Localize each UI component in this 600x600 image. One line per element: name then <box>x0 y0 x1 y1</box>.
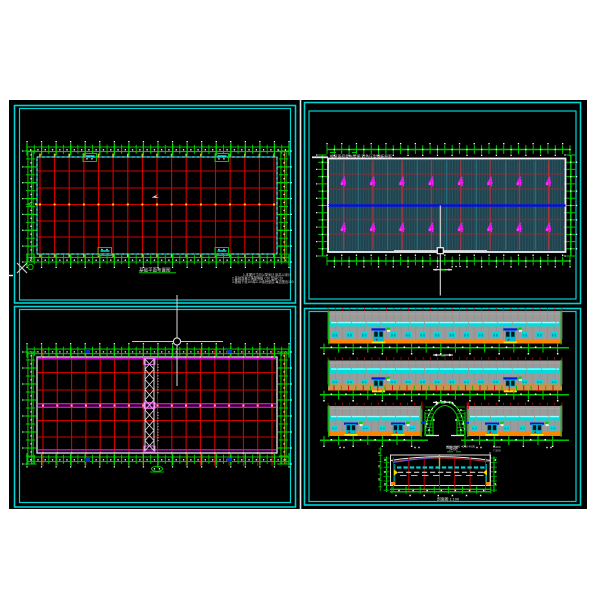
svg-text:7.500: 7.500 <box>493 449 501 453</box>
svg-text:钢屋面檩条布置图 彩色压型钢板屋面: 钢屋面檩条布置图 彩色压型钢板屋面 <box>330 154 392 159</box>
svg-text:3.基础下设100厚C10素砼垫层 每边宽出100: 3.基础下设100厚C10素砼垫层 每边宽出100 <box>232 279 294 284</box>
svg-text:剖面图 1:100: 剖面图 1:100 <box>437 497 459 502</box>
svg-text:24000: 24000 <box>449 448 458 452</box>
